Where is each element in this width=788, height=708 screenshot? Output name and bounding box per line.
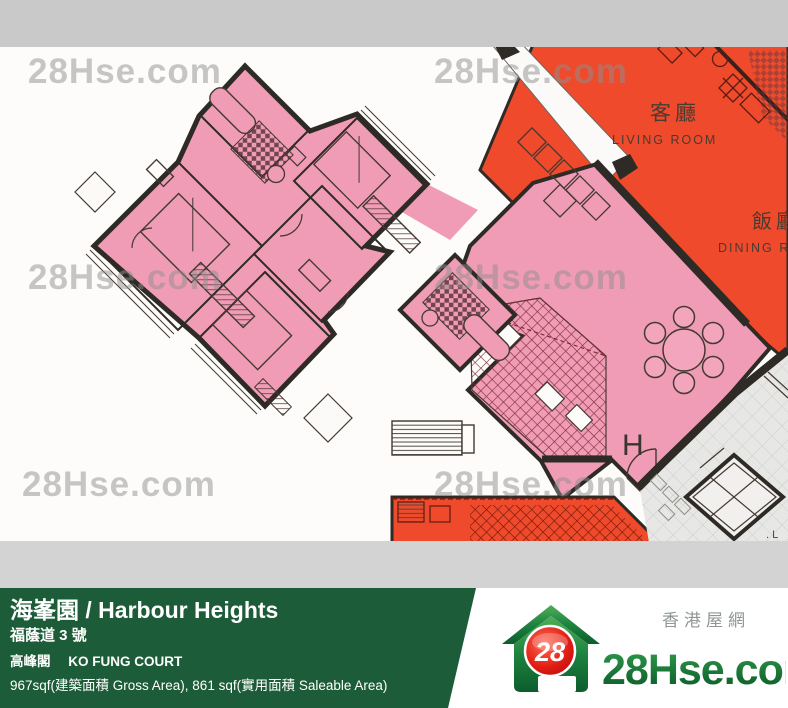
watermark-text: 28Hse.com (434, 52, 628, 91)
block-name-en: KO FUNG COURT (68, 654, 182, 669)
lift-label: . L (766, 529, 778, 541)
watermark-text: 28Hse.com (434, 258, 628, 297)
watermark-text: 28Hse.com (28, 52, 222, 91)
floorplan-image: 客廳 LIVING ROOM 飯廳 DINING R H . L 28Hse.c… (0, 0, 788, 708)
badge-28: 28 (534, 637, 565, 667)
footer-bar: 海峯園 / Harbour Heights 福蔭道 3 號 高峰閣 KO FUN… (0, 588, 788, 708)
watermark-text: 28Hse.com (28, 258, 222, 297)
living-room-label-en: LIVING ROOM (612, 133, 717, 147)
watermark-text: 28Hse.com (22, 465, 216, 504)
block-name-cn: 高峰閣 (10, 654, 51, 669)
estate-title: 海峯園 / Harbour Heights (10, 591, 278, 625)
floorplan-canvas: 客廳 LIVING ROOM 飯廳 DINING R H . L 28Hse.c… (0, 0, 788, 588)
dining-room-label-cn: 飯廳 (752, 210, 788, 233)
house-icon: 28 (502, 605, 600, 692)
top-gray-strip (0, 0, 788, 47)
bottom-gray-strip (0, 541, 788, 588)
logo-wordmark: 28Hse.com (602, 646, 786, 694)
estate-address: 福蔭道 3 號 (10, 624, 87, 645)
block-name: 高峰閣 KO FUNG COURT (10, 650, 182, 670)
living-room-label-cn: 客廳 (650, 102, 700, 125)
area-info: 967sqf(建築面積 Gross Area), 861 sqf(實用面積 Sa… (10, 674, 387, 694)
watermark-text: 28Hse.com (434, 465, 628, 504)
logo-tagline: 香港屋網 (662, 611, 750, 630)
28hse-logo: 28 香港屋網 28Hse.com (494, 596, 786, 706)
dining-room-label-en: DINING R (718, 241, 788, 255)
unit-label: H (622, 429, 644, 462)
